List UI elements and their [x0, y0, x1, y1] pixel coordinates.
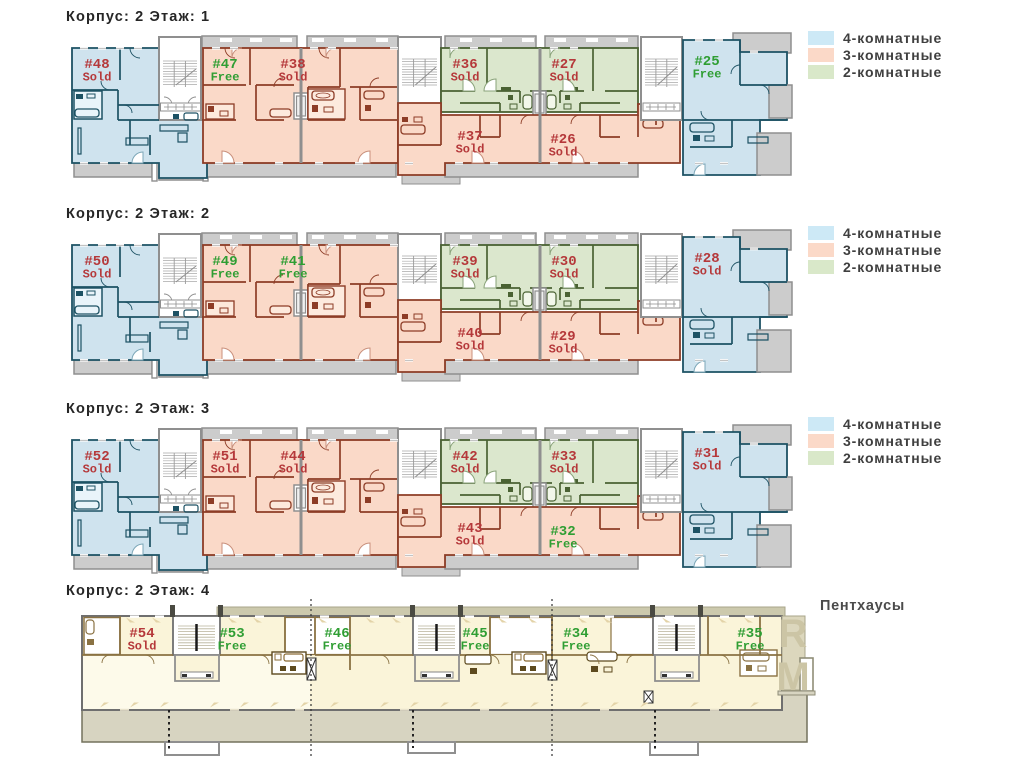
- svg-text:Sold: Sold: [83, 71, 112, 85]
- svg-text:Free: Free: [211, 268, 240, 282]
- svg-text:Sold: Sold: [549, 343, 578, 357]
- svg-text:Sold: Sold: [451, 71, 480, 85]
- svg-text:Sold: Sold: [456, 340, 485, 354]
- svg-text:Sold: Sold: [279, 71, 308, 85]
- svg-text:Free: Free: [218, 640, 247, 654]
- svg-text:Free: Free: [736, 640, 765, 654]
- svg-text:Sold: Sold: [550, 71, 579, 85]
- svg-text:Free: Free: [693, 68, 722, 82]
- svg-text:Sold: Sold: [456, 143, 485, 157]
- svg-text:Sold: Sold: [211, 463, 240, 477]
- svg-text:Sold: Sold: [279, 463, 308, 477]
- svg-text:Sold: Sold: [549, 146, 578, 160]
- svg-text:Sold: Sold: [83, 463, 112, 477]
- svg-text:Free: Free: [211, 71, 240, 85]
- svg-text:Sold: Sold: [456, 535, 485, 549]
- svg-text:Free: Free: [562, 640, 591, 654]
- svg-text:Sold: Sold: [693, 460, 722, 474]
- svg-text:Free: Free: [461, 640, 490, 654]
- svg-text:Sold: Sold: [451, 268, 480, 282]
- svg-text:Sold: Sold: [550, 463, 579, 477]
- svg-text:Sold: Sold: [83, 268, 112, 282]
- svg-text:Free: Free: [549, 538, 578, 552]
- svg-text:Sold: Sold: [550, 268, 579, 282]
- svg-text:Sold: Sold: [693, 265, 722, 279]
- svg-text:Free: Free: [323, 640, 352, 654]
- svg-text:Sold: Sold: [128, 640, 157, 654]
- svg-text:Sold: Sold: [451, 463, 480, 477]
- svg-text:R: R: [779, 612, 808, 656]
- svg-text:Free: Free: [279, 268, 308, 282]
- svg-text:M: M: [776, 655, 809, 699]
